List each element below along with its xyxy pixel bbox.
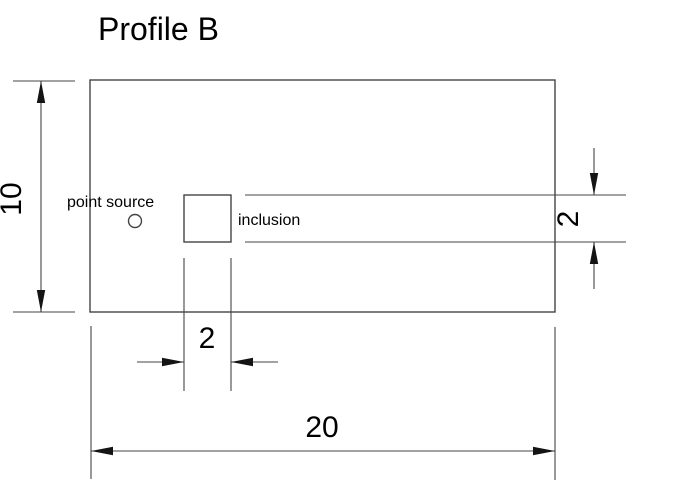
dimension-inclusion-height: 2 [245, 148, 626, 289]
dimension-value: 20 [305, 411, 338, 444]
inclusion-outline [184, 195, 231, 242]
dimension-inclusion-width: 2 [137, 258, 278, 391]
drawing-canvas: Profile B point source inclusion 10 2 [0, 0, 679, 498]
arrow-up-icon [590, 242, 598, 264]
arrow-up-icon [37, 81, 45, 103]
arrow-down-icon [590, 173, 598, 195]
dimension-value: 2 [552, 211, 585, 228]
arrow-down-icon [37, 290, 45, 312]
inclusion-label: inclusion [238, 212, 300, 229]
point-source-label: point source [67, 194, 154, 211]
profile-drawing: Profile B point source inclusion 10 2 [0, 0, 679, 498]
drawing-title: Profile B [98, 11, 219, 47]
arrow-left-icon [91, 447, 113, 455]
plate-outline [90, 80, 555, 312]
dimension-plate-width: 20 [91, 326, 555, 480]
arrow-right-icon [533, 447, 555, 455]
arrow-left-icon [231, 358, 253, 366]
arrow-right-icon [162, 358, 184, 366]
dimension-value: 10 [0, 182, 28, 215]
point-source-marker [129, 215, 142, 228]
dimension-value: 2 [199, 322, 216, 355]
dimension-plate-height: 10 [0, 81, 75, 312]
